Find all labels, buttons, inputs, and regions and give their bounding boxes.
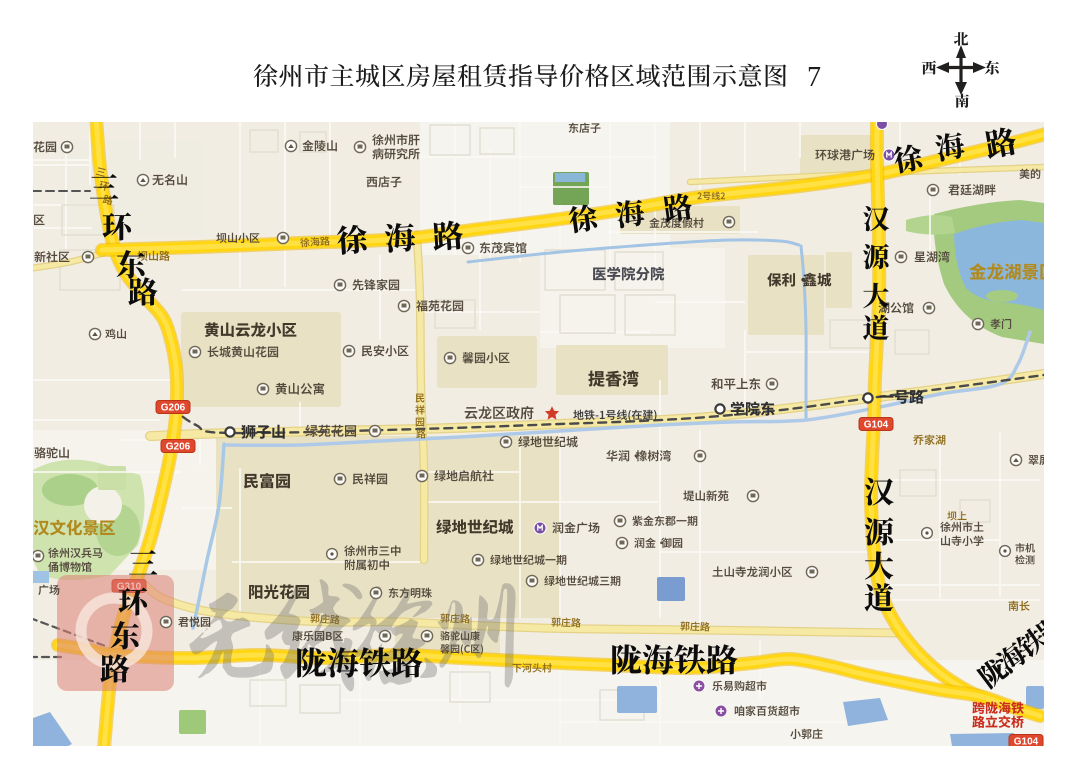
svg-text:7: 7: [807, 62, 821, 93]
svg-text:G206: G206: [166, 442, 191, 453]
svg-text:G104: G104: [1014, 737, 1039, 748]
svg-text:G206: G206: [161, 403, 186, 414]
svg-text:G104: G104: [864, 420, 889, 431]
